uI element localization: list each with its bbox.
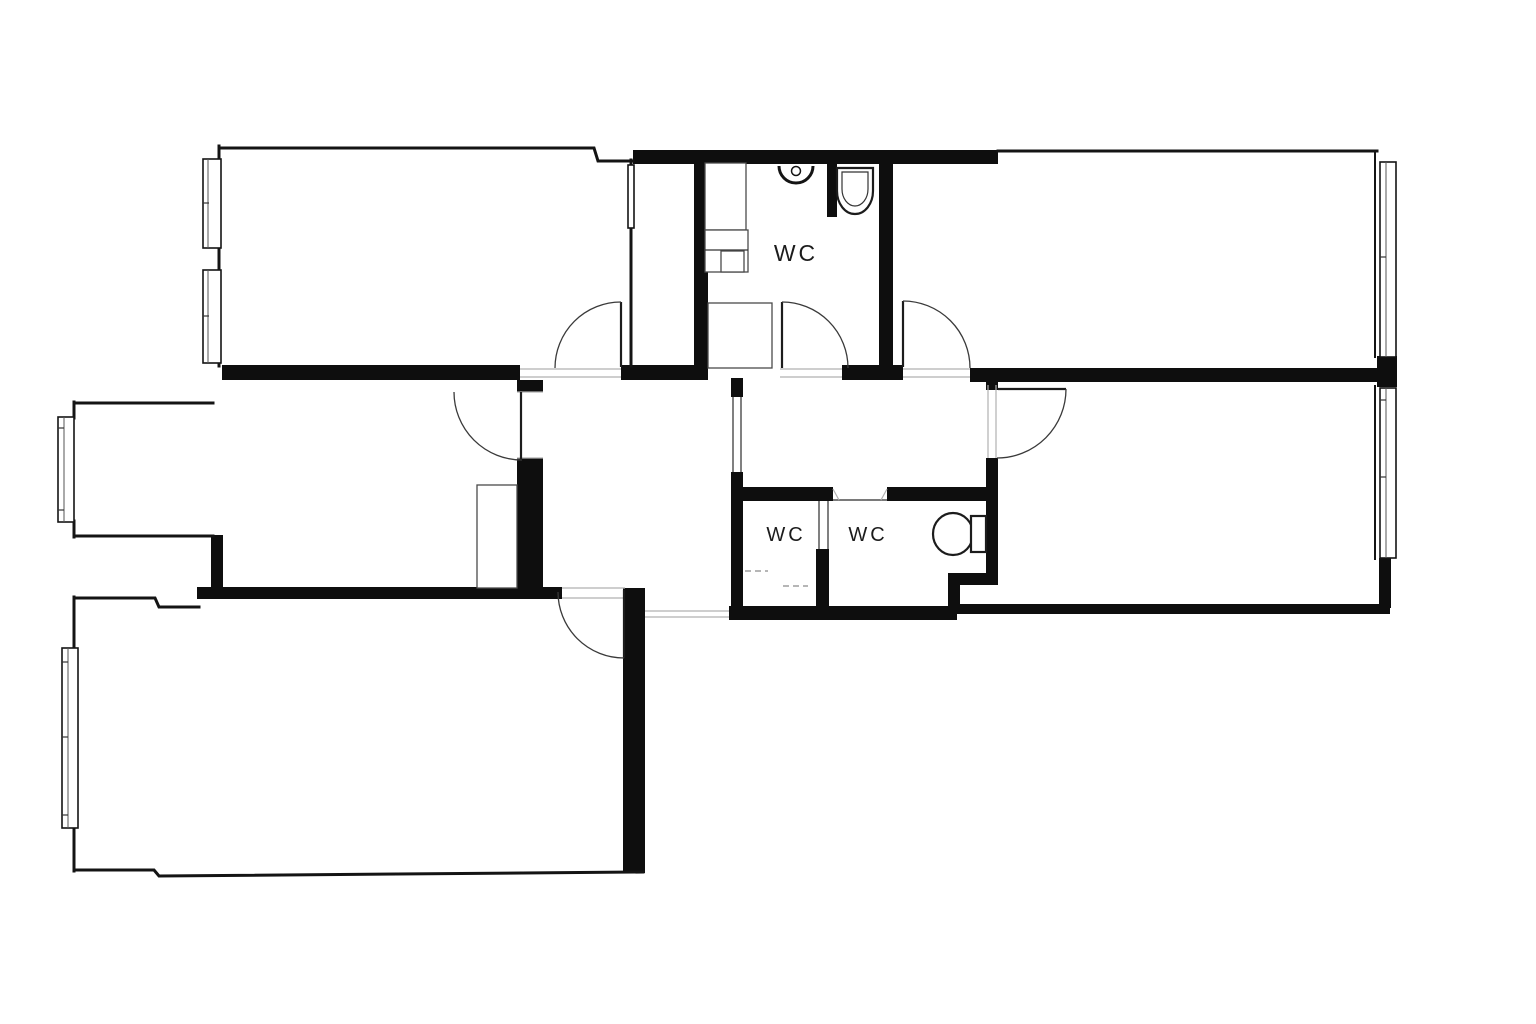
door-wc-top bbox=[780, 302, 848, 377]
label-wc-top: WC bbox=[774, 240, 818, 266]
wall-midleft-step bbox=[211, 535, 223, 599]
wall-bigroom-top bbox=[197, 587, 562, 599]
door-wcblock bbox=[833, 489, 887, 500]
toilet-top-icon bbox=[837, 168, 873, 214]
counter bbox=[705, 163, 746, 230]
wall-room-topleft-top bbox=[222, 148, 633, 161]
door-room-topleft bbox=[520, 302, 621, 377]
wardrobe bbox=[477, 485, 517, 588]
wall-bigroom-topleft bbox=[74, 598, 199, 607]
window-topright bbox=[1380, 162, 1396, 357]
window-bigroom bbox=[62, 648, 78, 828]
opening-wc-partition bbox=[819, 501, 828, 549]
wall-bigroom-bottom bbox=[74, 870, 643, 876]
wall-room-topleft-bottom bbox=[222, 365, 520, 380]
wall-wcblock-top-left bbox=[743, 487, 833, 501]
door-room-midleft bbox=[454, 392, 543, 460]
wall-right-junction bbox=[1377, 356, 1397, 387]
wall-corridor-stub-top bbox=[731, 378, 743, 397]
wall-wc-stub bbox=[827, 155, 837, 217]
window-midleft bbox=[58, 417, 74, 522]
wall-rightroom-left bbox=[986, 458, 998, 580]
toilet-right-icon bbox=[933, 513, 986, 555]
opening-corridor bbox=[733, 397, 741, 472]
wall-right-edge-lower bbox=[1379, 558, 1391, 608]
wall-hall-nw-stub bbox=[517, 380, 543, 392]
wall-rightroom-step-v bbox=[948, 585, 960, 607]
wall-wcblock-top-right bbox=[887, 487, 990, 501]
door-bigroom bbox=[558, 588, 625, 658]
sink-icon bbox=[779, 166, 813, 183]
wall-band-mid bbox=[842, 365, 903, 380]
wall-bigroom-right bbox=[623, 588, 645, 873]
wall-wcblock-bottom bbox=[729, 606, 957, 620]
label-wc-bottom-right: WC bbox=[848, 524, 887, 546]
window-rightroom bbox=[1380, 388, 1396, 558]
washing-machine-icon bbox=[705, 230, 748, 272]
wall-hall-left bbox=[517, 458, 543, 588]
floor-plan-drawing: WC WC WC bbox=[0, 0, 1536, 1024]
wall-rightroom-bottom bbox=[952, 604, 1390, 614]
shower-tray bbox=[708, 303, 772, 368]
wall-top-band bbox=[633, 150, 998, 164]
wall-main-right bbox=[970, 368, 1397, 382]
entry-threshold bbox=[645, 611, 729, 617]
wall-wc-partition-lower bbox=[816, 549, 829, 608]
floor-plan-canvas: WC WC WC bbox=[0, 0, 1536, 1024]
label-wc-bottom-left: WC bbox=[766, 524, 805, 546]
door-room-right bbox=[988, 385, 1066, 458]
wall-wc-top-right bbox=[879, 152, 893, 368]
door-room-topright bbox=[903, 301, 970, 377]
wall-corridor-lower bbox=[731, 472, 743, 618]
wall-niche bbox=[628, 165, 634, 228]
window-topleft-1 bbox=[203, 159, 221, 248]
window-topleft-2 bbox=[203, 270, 221, 363]
wall-rightroom-step-h bbox=[948, 573, 998, 585]
